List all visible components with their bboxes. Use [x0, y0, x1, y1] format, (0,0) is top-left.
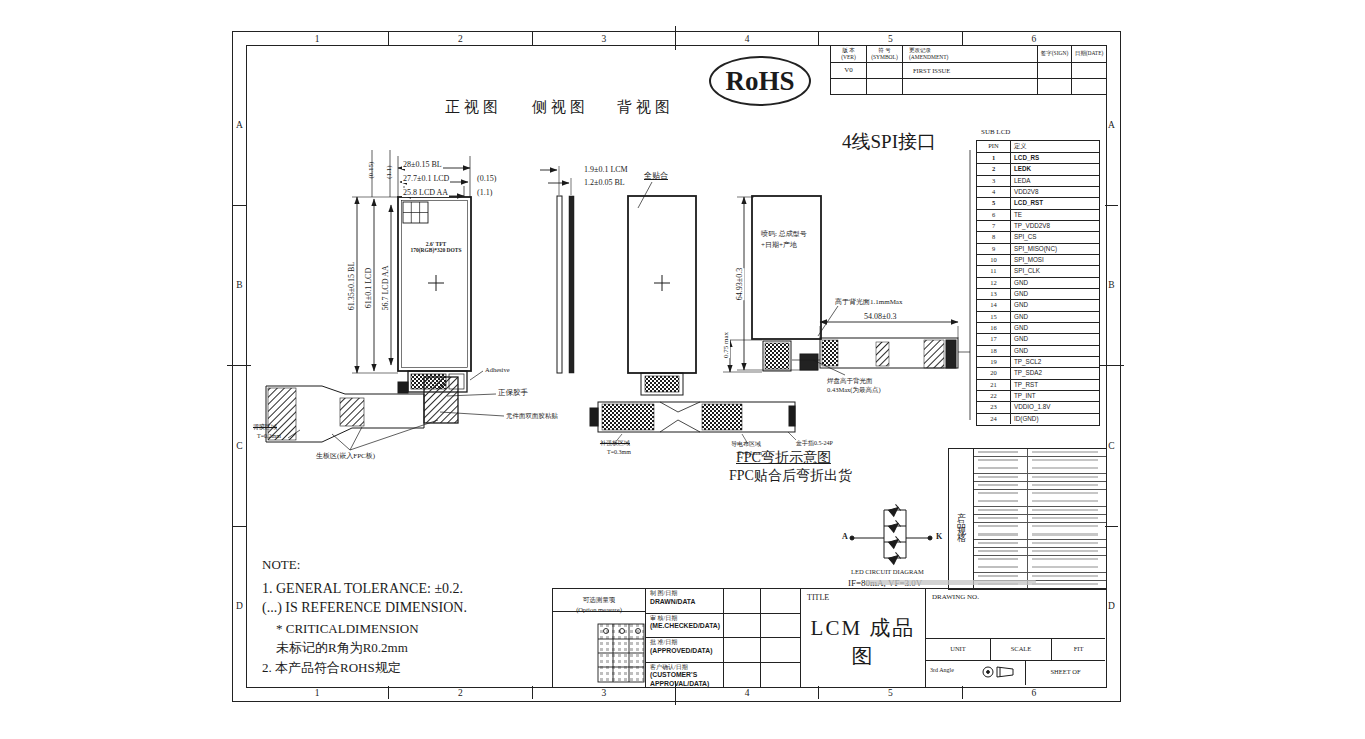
pin-number: 2 [977, 164, 1011, 174]
signature-label-en: DRAWN/DATA [650, 598, 695, 605]
dim-side-2: 1.2±0.05 BL [584, 178, 625, 187]
signature-label-cn: 批 准/日期 [650, 639, 677, 645]
back-view-title: 背视图 [617, 99, 674, 116]
rev-cell-empty [1038, 79, 1072, 94]
panel-type-line1: 2.6' TFT [426, 241, 446, 247]
rev-header-ver: 版 本(VER) [831, 45, 867, 63]
pin-number: 10 [977, 255, 1011, 265]
pin-number: 16 [977, 323, 1011, 333]
pin-row: 17 GND [977, 334, 1099, 345]
rev-cell-empty [831, 79, 867, 94]
pin-name: TP_SDA2 [1011, 368, 1099, 378]
pin-number: 15 [977, 312, 1011, 322]
dim-pad-height: 0.75 max [722, 332, 730, 358]
pin-name: TP_VDD2V8 [1011, 221, 1099, 231]
product-spec-table: 产品规格 [948, 448, 1107, 590]
title-label: TITLE [801, 589, 925, 602]
pin-number: 18 [977, 346, 1011, 356]
pin-name: GND [1011, 300, 1099, 310]
pin-row: 1 LCD_RS [977, 153, 1099, 164]
rev-cell-sign [1038, 63, 1072, 79]
rev-header-amendment: 更改记录(AMENDMENT) [903, 45, 1038, 63]
revision-table: 版 本(VER) 符 号(SYMBOL) 更改记录(AMENDMENT) 签字(… [830, 45, 1107, 95]
rev-header-sign: 签字(SIGN) [1038, 45, 1072, 63]
pin-row: 22 TP_INT [977, 391, 1099, 402]
dim-front-left-2: 61±0.1 LCD [364, 268, 373, 308]
annotation-spray-code: 喷码: 总成型号 +日期+产地 [761, 229, 807, 250]
pin-number: 22 [977, 391, 1011, 401]
spec-table-side-label: 产品规格 [949, 449, 974, 589]
pin-name: SPI_CS [1011, 232, 1099, 242]
pin-table-caption: SUB LCD [981, 128, 1010, 136]
dim-front-left-3: 56.7 LCD AA [381, 265, 390, 310]
dim-front-gap-ref-1: (0.15) [367, 162, 375, 179]
panel-type-line2: 170(RGB)*320 DOTS [410, 247, 461, 253]
dim-front-top-2-ref: (0.15) [477, 174, 496, 183]
side-view [540, 166, 574, 373]
pin-row: 12 GND [977, 278, 1099, 289]
led-circuit [850, 504, 932, 564]
dim-front-top-3: 25.8 LCD AA [402, 188, 449, 197]
pin-number: 23 [977, 402, 1011, 412]
title-block-date-blank [761, 589, 801, 687]
led-cathode-label: K [936, 532, 942, 541]
pin-name: GND [1011, 334, 1099, 344]
annotation-conductive: 导电布区域 [731, 441, 761, 448]
pin-number: 3 [977, 176, 1011, 186]
pin-number: 6 [977, 210, 1011, 220]
signature-label-cn: 制 图/日期 [650, 590, 677, 596]
note-line-2: (...) IS REFERENCE DIMENSION. [262, 600, 467, 616]
pin-name: SPI_CLK [1011, 266, 1099, 276]
pin-name: TE [1011, 210, 1099, 220]
pin-number: 12 [977, 278, 1011, 288]
pin-row: 14 GND [977, 300, 1099, 311]
pad-above-line2: 0.43Max(为最高点) [827, 386, 881, 393]
rev-label: FIT [1052, 639, 1105, 660]
pin-name: GND [1011, 346, 1099, 356]
option-measure-text: 可选测量项(Option measure) [553, 589, 645, 612]
spec-table-column-divider [1027, 449, 1028, 589]
pin-row: 7 TP_VDD2V8 [977, 221, 1099, 232]
spi-interface-title: 4线SPI接口 [842, 131, 936, 153]
pin-number: 9 [977, 244, 1011, 254]
note-line-3: * CRITICALDIMENSION [276, 622, 419, 637]
annotation-stiffener-thickness: T=0.3mm [607, 449, 631, 456]
pin-name: LCD_RST [1011, 198, 1099, 208]
pin-number: 11 [977, 266, 1011, 276]
pin-row: 21 TP_RST [977, 380, 1099, 391]
rev-cell-empty [867, 79, 903, 94]
dim-total-height: 64.93±0.3 [735, 268, 744, 300]
pin-name: LCD_RS [1011, 153, 1099, 163]
fpc-bend-title: FPC弯折示意图 [736, 450, 831, 466]
rev-cell-date [1072, 63, 1106, 79]
pin-name: GND [1011, 278, 1099, 288]
rev-header-symbol: 符 号(SYMBOL) [867, 45, 903, 63]
annotation-front-tab: 正保胶手 [498, 389, 528, 398]
annotation-pad-above: 焊盘高于背光面 0.43Max(为最高点) [827, 376, 881, 394]
pin-name: LEDK [1011, 164, 1099, 174]
pin-table: PIN 定义 1 LCD_RS 2 LEDK 3 LEDA 4 VDD2V8 5… [976, 140, 1100, 426]
title-block-title-cell: TITLE LCM 成品图 [801, 589, 926, 687]
pin-row: 11 SPI_CLK [977, 266, 1099, 277]
annotation-goldfinger: 金手指0.5-24P [796, 440, 833, 447]
rev-cell-amendment: FIRST ISSUE [903, 63, 1038, 79]
spec-table-text-smudge [978, 451, 1018, 587]
pin-number: 20 [977, 368, 1011, 378]
pin-row: 24 ID(GND) [977, 414, 1099, 424]
annotation-stiffener: 补强板区域 [600, 440, 630, 447]
pin-name: TP_SCL2 [1011, 357, 1099, 367]
note-line-5: 2. 本产品符合ROHS规定 [262, 661, 401, 676]
pin-row: 23 VDDIO_1.8V [977, 402, 1099, 413]
title-block-signature-blank [724, 589, 761, 687]
dim-front-top-1: 28±0.15 BL [402, 160, 443, 169]
pin-col-header: PIN [977, 141, 1011, 152]
pin-row: 18 GND [977, 346, 1099, 357]
signature-label-en: (APPROVED/DATA) [650, 647, 712, 654]
signature-label-en: (ME.CHECKED/DATA) [650, 622, 720, 629]
note-line-4: 未标记的R角为R0.2mm [276, 641, 408, 656]
back-view-1 [590, 182, 796, 444]
signature-label-cn: 审 核/日期 [650, 615, 677, 621]
signature-row: 审 核/日期 (ME.CHECKED/DATA) [646, 614, 723, 639]
title-block: 可选测量项(Option measure) 制 图/日期 DRAWN/DATA … [552, 588, 1106, 687]
annotation-peel-area: 背胶区域 [253, 424, 277, 431]
note-heading: NOTE: [262, 558, 300, 573]
title-block-option-cell: 可选测量项(Option measure) [553, 589, 646, 687]
pin-name: SPI_MOSI [1011, 255, 1099, 265]
rev-cell-symbol [867, 63, 903, 79]
pin-number: 4 [977, 187, 1011, 197]
panel-type-text: 2.6' TFT 170(RGB)*320 DOTS [408, 241, 464, 254]
led-anode-label: A [842, 532, 848, 541]
rev-header-date: 日期(DATE) [1072, 45, 1106, 63]
pin-name: TP_INT [1011, 391, 1099, 401]
signature-label-cn: 客户确认/日期 [650, 664, 688, 670]
front-view-title: 正视图 [445, 99, 502, 116]
pin-number: 14 [977, 300, 1011, 310]
pin-name: ID(GND) [1011, 414, 1099, 424]
pin-name: VDD2V8 [1011, 187, 1099, 197]
pin-row: 3 LEDA [977, 176, 1099, 187]
pin-name: GND [1011, 289, 1099, 299]
pad-above-line1: 焊盘高于背光面 [827, 377, 873, 384]
angle-label: 3rd Angle [926, 661, 1026, 685]
signature-row: 客户确认/日期 (CUSTOMER'S APPROVAL/DATA) [646, 663, 723, 688]
pin-row: 6 TE [977, 210, 1099, 221]
rev-cell-ver: V0 [831, 63, 867, 79]
signature-label-en: (CUSTOMER'S APPROVAL/DATA) [650, 671, 709, 687]
pin-number: 7 [977, 221, 1011, 231]
side-view-title: 侧视图 [532, 99, 589, 116]
drawing-no-label: DRAWING NO. [926, 589, 1105, 639]
pin-row: 19 TP_SCL2 [977, 357, 1099, 368]
drawing-title: LCM 成品图 [801, 614, 925, 670]
pin-number: 1 [977, 153, 1011, 163]
dim-front-left-1: 61.35±0.15 BL [347, 262, 356, 311]
title-block-signature-labels: 制 图/日期 DRAWN/DATA 审 核/日期 (ME.CHECKED/DAT… [646, 589, 724, 687]
annotation-component-tape: 元件面双面胶粘贴 [506, 412, 558, 419]
pin-number: 17 [977, 334, 1011, 344]
spec-table-rows [974, 449, 1106, 589]
pin-number: 24 [977, 414, 1011, 424]
def-col-header: 定义 [1011, 141, 1099, 152]
pin-name: LEDA [1011, 176, 1099, 186]
engineering-drawing-sheet: 1 2 3 4 5 6 1 2 3 4 5 6 A B C D A B C D [0, 0, 1365, 739]
pin-row: 2 LEDK [977, 164, 1099, 175]
pin-row: 16 GND [977, 323, 1099, 334]
pin-row: 15 GND [977, 312, 1099, 323]
fpc-bend-subtitle: FPC贴合后弯折出货 [729, 468, 852, 484]
annotation-above-backlight: 高于背光面1.1mmMax [835, 298, 902, 306]
annotation-steel-area: 生板区(嵌入FPC板) [316, 452, 375, 460]
led-caption: LED CIRCUIT DIAGRAM [851, 568, 924, 575]
pin-name: GND [1011, 312, 1099, 322]
dim-front-gap-ref-2: (1.1) [385, 165, 393, 178]
dim-fpc-length: 54.08±0.3 [862, 312, 898, 321]
signature-row: 制 图/日期 DRAWN/DATA [646, 589, 723, 614]
rev-cell-empty [903, 79, 1038, 94]
pin-row: 20 TP_SDA2 [977, 368, 1099, 379]
sheet-label: SHEET OF [1026, 661, 1105, 685]
signature-row: 批 准/日期 (APPROVED/DATA) [646, 638, 723, 663]
pin-row: 9 SPI_MISO(NC) [977, 244, 1099, 255]
pin-name: TP_RST [1011, 380, 1099, 390]
pin-row: 5 LCD_RST [977, 198, 1099, 209]
pin-number: 5 [977, 198, 1011, 208]
pin-number: 19 [977, 357, 1011, 367]
dim-side-1: 1.9±0.1 LCM [584, 165, 628, 174]
title-block-right: DRAWING NO. UNIT SCALE FIT 3rd Angle SHE… [926, 589, 1105, 687]
scale-label: SCALE [991, 639, 1052, 660]
spray-line1: 喷码: 总成型号 [761, 230, 807, 238]
pin-table-rows: 1 LCD_RS 2 LEDK 3 LEDA 4 VDD2V8 5 LCD_RS… [977, 153, 1099, 424]
pin-name: SPI_MISO(NC) [1011, 244, 1099, 254]
pin-row: 8 SPI_CS [977, 232, 1099, 243]
pin-number: 8 [977, 232, 1011, 242]
pin-row: 10 SPI_MOSI [977, 255, 1099, 266]
rev-cell-empty [1072, 79, 1106, 94]
annotation-full-lamination: 全贴合 [644, 171, 668, 180]
pin-number: 13 [977, 289, 1011, 299]
rohs-badge: RoHS [709, 56, 811, 106]
annotation-adhesive: Adhesive [485, 366, 510, 373]
pin-number: 21 [977, 380, 1011, 390]
pin-table-header: PIN 定义 [977, 141, 1099, 153]
dim-front-top-3-ref: (1.1) [477, 188, 492, 197]
pin-name: VDDIO_1.8V [1011, 402, 1099, 412]
illegible-note-smudge [866, 580, 1036, 585]
spray-line2: +日期+产地 [761, 241, 797, 249]
pin-row: 13 GND [977, 289, 1099, 300]
unit-label: UNIT [926, 639, 991, 660]
pin-name: GND [1011, 323, 1099, 333]
spec-table-text-smudge [1032, 451, 1098, 587]
note-line-1: 1. GENERAL TOLERANCE: ±0.2. [262, 581, 463, 597]
annotation-peel-thickness: T=0.2mm [257, 433, 281, 440]
dim-front-top-2: 27.7±0.1 LCD [402, 174, 450, 183]
pin-row: 4 VDD2V8 [977, 187, 1099, 198]
